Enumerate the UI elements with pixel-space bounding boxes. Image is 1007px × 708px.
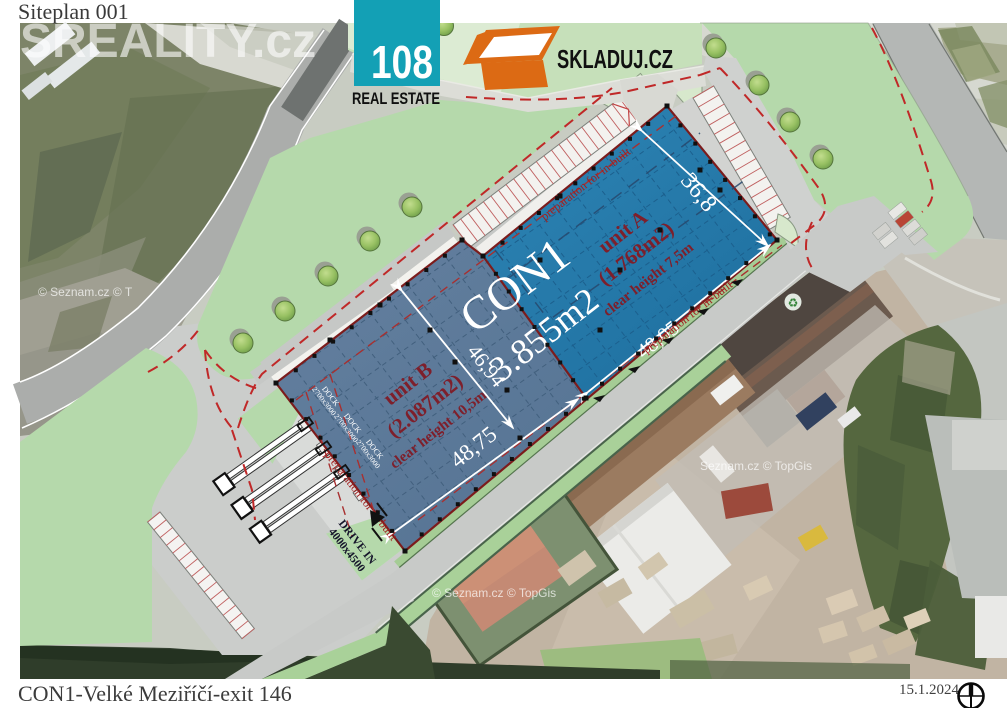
svg-text:15.1.2024: 15.1.2024 [899, 682, 960, 698]
svg-text:© Seznam.cz © TopGis: © Seznam.cz © TopGis [432, 586, 556, 600]
svg-text:Siteplan 001: Siteplan 001 [18, 0, 129, 24]
svg-text:Seznam.cz © TopGis: Seznam.cz © TopGis [700, 459, 812, 473]
svg-text:SKLADUJ.CZ: SKLADUJ.CZ [557, 44, 673, 74]
svg-text:♻: ♻ [788, 296, 799, 310]
svg-text:© Seznam.cz © T: © Seznam.cz © T [38, 285, 133, 299]
svg-text:CON1-Velké Meziříčí-exit 146: CON1-Velké Meziříčí-exit 146 [18, 681, 292, 706]
svg-text:REAL ESTATE: REAL ESTATE [352, 89, 440, 108]
svg-text:108: 108 [371, 36, 433, 88]
